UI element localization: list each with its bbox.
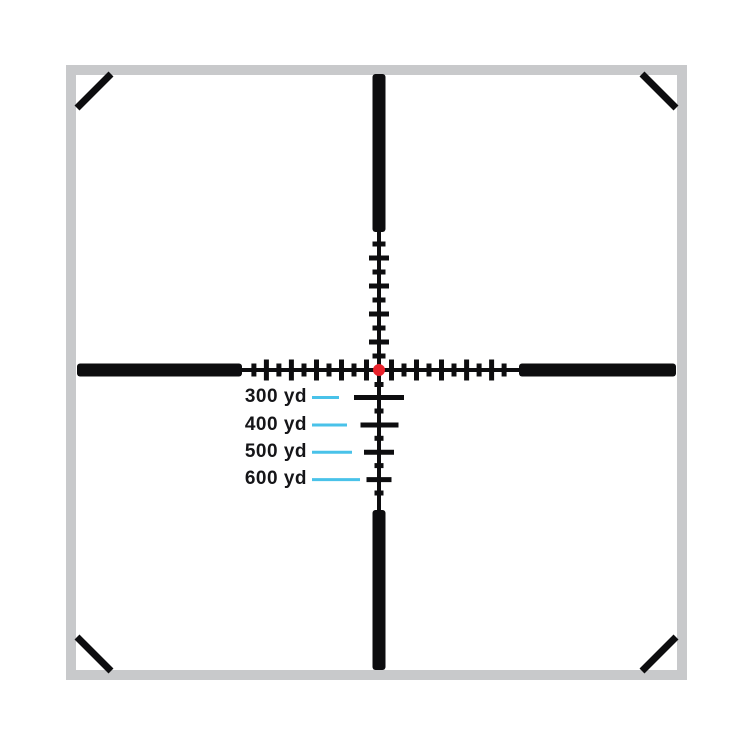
- holdover-label-400: 400 yd: [231, 414, 307, 436]
- holdover-label-500: 500 yd: [231, 441, 307, 463]
- post-right: [519, 364, 676, 377]
- center-dot: [373, 364, 385, 376]
- reticle-diagram: 300 yd 400 yd 500 yd 600 yd: [0, 0, 750, 750]
- post-bottom: [373, 510, 386, 670]
- reticle-graphic: [0, 0, 750, 750]
- holdover-label-300: 300 yd: [231, 386, 307, 408]
- leader-lines: [312, 398, 360, 480]
- post-left: [77, 364, 242, 377]
- corner-mark-top-right-icon: [642, 74, 676, 108]
- corner-mark-top-left-icon: [77, 74, 111, 108]
- corner-mark-bottom-left-icon: [77, 637, 111, 671]
- corner-mark-bottom-right-icon: [642, 637, 676, 671]
- holdover-label-600: 600 yd: [231, 468, 307, 490]
- post-top: [373, 74, 386, 232]
